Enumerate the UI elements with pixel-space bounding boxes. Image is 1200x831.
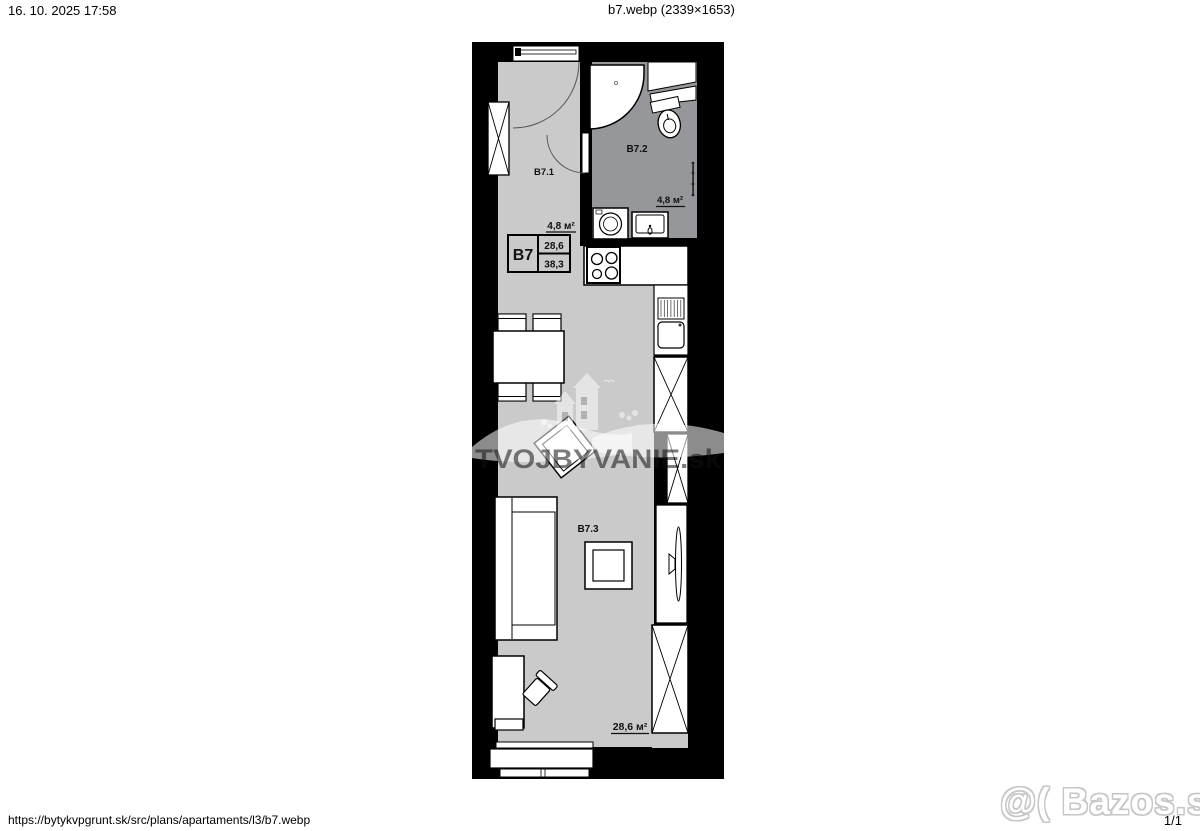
kitchen-tall-cabinet [654, 357, 688, 432]
print-footer-url: https://bytykvpgrunt.sk/src/plans/aparta… [8, 813, 310, 827]
wardrobe [652, 625, 688, 733]
kitchen-sink [654, 285, 688, 355]
floorplan-image: B7 28,6 38,3 B7.1 4,8 м² B7.2 4,8 м² B7.… [472, 42, 724, 779]
hallway-floor [498, 62, 583, 247]
tv-unit [656, 505, 687, 623]
sofa [495, 497, 557, 640]
window [490, 742, 593, 777]
print-footer-page: 1/1 [1164, 813, 1182, 828]
area-label-bath: 4,8 м² [657, 195, 683, 206]
low-cabinet [495, 719, 523, 730]
bathroom-sink [632, 212, 668, 238]
print-header-title: b7.webp (2339×1653) [608, 2, 735, 17]
area-label-hall: 4,8 м² [547, 221, 575, 232]
stove [587, 247, 620, 283]
washing-machine [593, 208, 628, 239]
room-label-living: B7.3 [577, 524, 599, 535]
desk [492, 656, 524, 728]
unit-code: B7 [513, 247, 534, 264]
unit-area-living: 28,6 [544, 241, 564, 252]
unit-area-total: 38,3 [544, 260, 564, 271]
tv-screen [676, 527, 682, 601]
room-label-bath: B7.2 [626, 144, 648, 155]
room-label-hall: B7.1 [534, 167, 555, 178]
dining-table [493, 331, 564, 383]
area-label-living: 28,6 м² [613, 721, 648, 733]
site-watermark-text: TVOJBYVANIE.sk [475, 444, 722, 474]
hallway-wardrobe [488, 102, 509, 175]
print-header-date: 16. 10. 2025 17:58 [8, 3, 116, 18]
coffee-table [585, 542, 632, 589]
